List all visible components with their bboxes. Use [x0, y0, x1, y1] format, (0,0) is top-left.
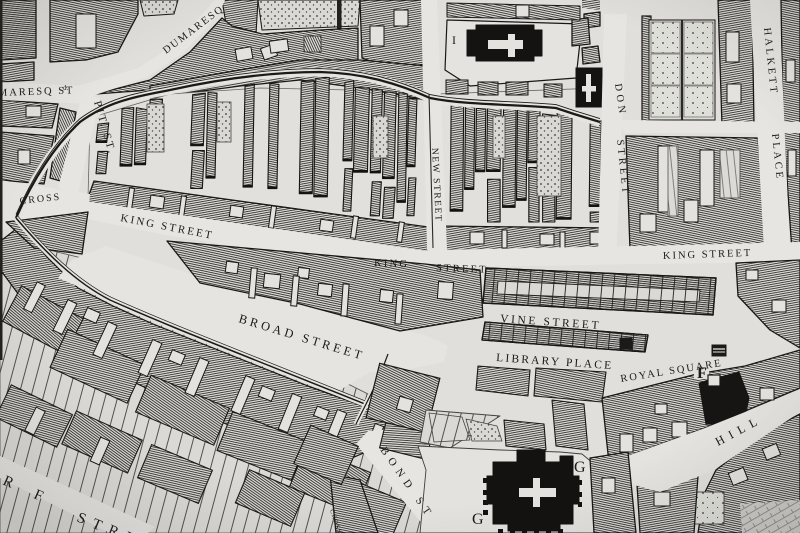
svg-text:STREET: STREET	[436, 263, 488, 276]
svg-text:F: F	[697, 365, 707, 382]
svg-text:d.: d.	[63, 84, 69, 92]
svg-text:KING: KING	[374, 258, 409, 270]
